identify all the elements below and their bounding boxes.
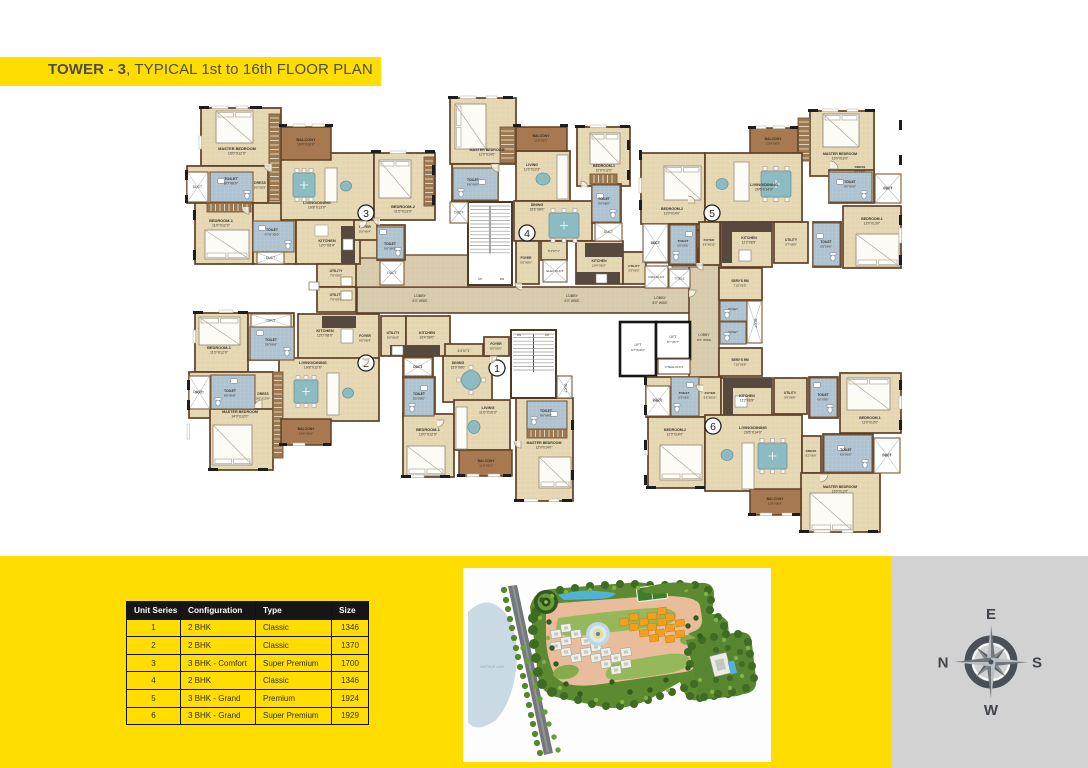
svg-text:S: S xyxy=(1032,655,1042,672)
svg-text:N: N xyxy=(938,655,949,672)
svg-text:W: W xyxy=(984,702,999,719)
svg-text:E: E xyxy=(986,606,996,623)
